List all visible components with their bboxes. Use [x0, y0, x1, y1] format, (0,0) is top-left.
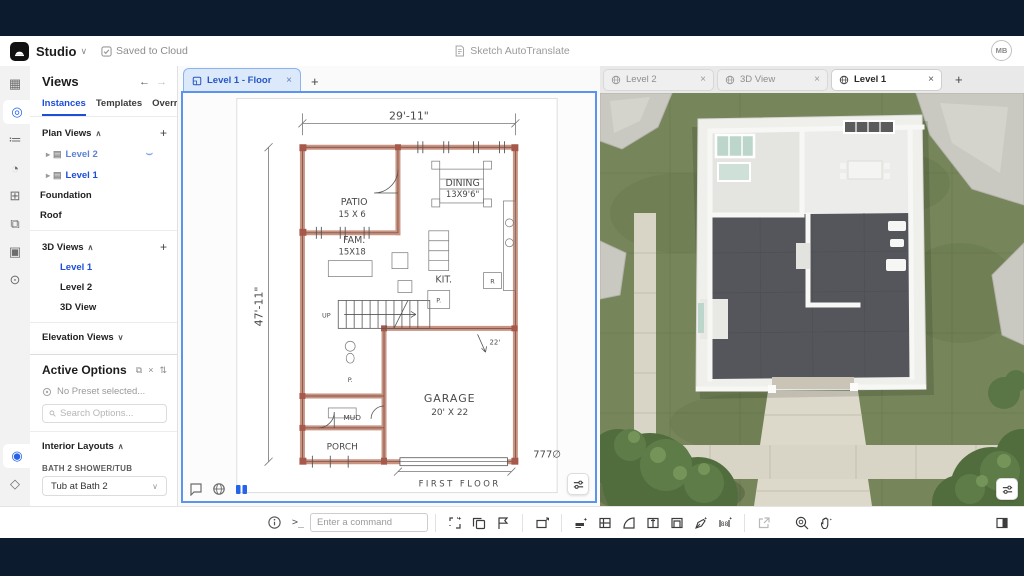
window-tool-icon[interactable] — [665, 512, 689, 534]
close-tab-icon[interactable]: × — [700, 74, 706, 85]
comment-icon[interactable] — [189, 482, 203, 496]
views-tabs: Instances Templates Overrides — [30, 93, 177, 117]
pin-icon[interactable]: ⊙ — [3, 268, 27, 292]
views-sidebar: Views ← → Instances Templates Overrides … — [30, 66, 178, 506]
plan-caption: FIRST FLOOR — [419, 479, 501, 489]
sheets-icon[interactable]: ▦ — [3, 72, 27, 96]
app-name[interactable]: Studio — [36, 44, 76, 59]
plan-dining-size: 13X9'6" — [446, 189, 480, 199]
sliders-icon — [572, 478, 585, 491]
new-tab-button[interactable]: + — [311, 74, 319, 92]
preset-icon — [42, 387, 52, 397]
panel-toggle-icon[interactable] — [990, 512, 1014, 534]
3d-views-section-header[interactable]: 3D Views ∧ + — [30, 231, 177, 257]
canvas-corner-tools — [189, 482, 248, 496]
floor-plan-sketch: 29'-11" 47'-11" — [183, 93, 595, 501]
autotranslate-status: Sketch AutoTranslate — [454, 45, 569, 57]
history-forward-button[interactable]: → — [156, 76, 167, 88]
floor-layers-icon: ▤ — [53, 170, 62, 181]
left-icon-rail: ▦ ◎ ≔ ◔ ⊞ ⧉ ▣ ⊙ ◉ ◇ — [0, 66, 30, 506]
sketch-pen-icon[interactable] — [689, 512, 713, 534]
item-label[interactable]: Roof — [40, 210, 62, 221]
tab-templates[interactable]: Templates — [96, 98, 142, 116]
history-back-button[interactable]: ← — [139, 76, 150, 88]
sliders-icon — [1001, 483, 1014, 496]
bath3-field-label: BATH 3 LAYOUT — [30, 496, 177, 506]
tab-level1-floor[interactable]: Level 1 - Floor × — [183, 68, 301, 92]
grid-icon[interactable]: ⊞ — [3, 184, 27, 208]
options-icon[interactable]: ◉ — [3, 444, 31, 468]
info-icon[interactable] — [262, 512, 286, 534]
sketch-pane: Level 1 - Floor × + 29'-11" — [178, 66, 600, 506]
plan-view-level-1[interactable]: ▸ ▤ Level 1 — [30, 165, 177, 185]
item-label[interactable]: Foundation — [40, 190, 92, 201]
split-view-icon[interactable] — [235, 483, 248, 496]
svg-text:88: 88 — [720, 520, 728, 528]
sort-icon[interactable]: ⇅ — [159, 365, 167, 376]
render-pane: Level 2 × 3D View × Level 1 × + — [600, 66, 1024, 506]
plan-patio-size: 15 X 6 — [339, 209, 366, 219]
command-prompt-icon[interactable]: >_ — [292, 517, 304, 528]
elevation-views-section-header[interactable]: Elevation Views ∨ — [30, 323, 177, 346]
bath2-field-label: BATH 2 SHOWER/TUB — [30, 455, 177, 476]
popout-icon[interactable]: ⧉ — [136, 365, 142, 376]
plan-dim-top: 29'-11" — [389, 109, 429, 122]
add-3d-view-button[interactable]: + — [160, 240, 167, 254]
checklist-icon[interactable]: ≔ — [3, 128, 27, 152]
sketch-canvas[interactable]: 29'-11" 47'-11" — [181, 91, 597, 503]
plan-garage-label: GARAGE — [424, 392, 476, 405]
saved-status: Saved to Cloud — [101, 45, 188, 57]
3d-view-level-1[interactable]: Level 1 — [30, 257, 177, 277]
tab-3d-view[interactable]: 3D View × — [717, 69, 828, 91]
preset-label: No Preset selected... — [57, 386, 145, 397]
plan-fridge-label: R — [490, 278, 495, 286]
app-logo-icon[interactable] — [10, 42, 29, 61]
duplicate-icon[interactable] — [467, 512, 491, 534]
plan-area-label: 777∅ — [533, 450, 561, 461]
sphere-icon — [725, 75, 735, 85]
collapse-caret-icon[interactable]: ∧ — [95, 129, 101, 138]
bath2-select-value: Tub at Bath 2 — [51, 481, 108, 492]
box-icon[interactable]: ◇ — [3, 472, 27, 496]
draw-rectangle-icon[interactable] — [530, 512, 554, 534]
command-input[interactable] — [310, 513, 428, 532]
sphere-icon — [611, 75, 621, 85]
preset-row[interactable]: No Preset selected... — [30, 379, 177, 399]
plan-view-foundation[interactable]: Foundation — [30, 185, 177, 205]
twirl-icon[interactable]: ▸ — [46, 171, 50, 180]
plan-views-label: Plan Views — [42, 128, 91, 139]
user-avatar[interactable]: MB — [991, 40, 1012, 61]
sketch-doc-icon — [454, 45, 465, 57]
render-viewport[interactable] — [600, 93, 1024, 506]
collapse-caret-icon[interactable]: ∧ — [88, 243, 94, 252]
plan-view-level-2[interactable]: ▸ ▤ Level 2 ⌣ — [30, 143, 177, 165]
bottom-toolbar: >_ — [0, 506, 1024, 538]
dropdown-chevron-icon: ∨ — [152, 482, 158, 491]
close-tab-icon[interactable]: × — [286, 75, 292, 86]
add-plan-view-button[interactable]: + — [160, 126, 167, 140]
render-tabstrip: Level 2 × 3D View × Level 1 × + — [600, 66, 1024, 93]
export-icon — [752, 512, 776, 534]
checkbox-icon — [101, 46, 112, 57]
plan-doc-icon — [192, 76, 202, 86]
top-header: Studio ∨ Saved to Cloud Sketch AutoTrans… — [0, 36, 1024, 66]
saved-status-label: Saved to Cloud — [116, 45, 188, 57]
slab-tool-icon[interactable] — [593, 512, 617, 534]
plan-patio-label: PATIO — [341, 197, 368, 208]
search-zoom-icon[interactable] — [790, 512, 814, 534]
expand-caret-icon[interactable]: ∨ — [118, 333, 124, 342]
app-menu-chevron-icon[interactable]: ∨ — [80, 46, 87, 57]
3d-globe-icon[interactable] — [212, 482, 226, 496]
active-options-title: Active Options — [42, 363, 130, 377]
wall-tool-icon[interactable] — [569, 512, 593, 534]
twirl-icon[interactable]: ▸ — [46, 150, 50, 159]
plan-porch-label: PORCH — [327, 443, 358, 453]
item-label[interactable]: Level 2 — [66, 149, 98, 160]
plan-fam-label: FAM. — [343, 235, 365, 246]
close-tab-icon[interactable]: × — [928, 74, 934, 85]
interior-layouts-section-header[interactable]: Interior Layouts ∧ — [30, 432, 177, 455]
plan-views-section-header[interactable]: Plan Views ∧ + — [30, 117, 177, 143]
3d-views-label: 3D Views — [42, 242, 84, 253]
dimension-tool-icon[interactable]: 88 — [713, 512, 737, 534]
elevation-views-label: Elevation Views — [42, 332, 114, 343]
plan-pantry-label: P. — [436, 296, 441, 304]
tab-level-2[interactable]: Level 2 × — [603, 69, 714, 91]
layers-icon[interactable]: ⧉ — [3, 212, 27, 236]
close-tab-icon[interactable]: × — [814, 74, 820, 85]
3d-view-level-2[interactable]: Level 2 — [30, 277, 177, 297]
tab-label: Level 2 — [626, 74, 695, 85]
sketch-tabstrip: Level 1 - Floor × + — [178, 66, 600, 92]
plan-view-roof[interactable]: Roof — [30, 205, 177, 225]
plan-mud-label: MUD — [343, 413, 361, 422]
plan-bath-label: P. — [348, 376, 353, 384]
item-label[interactable]: 3D View — [60, 302, 96, 313]
search-icon — [49, 409, 56, 418]
item-label[interactable]: Level 1 — [66, 170, 98, 181]
views-icon[interactable]: ◎ — [3, 100, 31, 124]
plan-dim-22: 22' — [490, 338, 501, 346]
render-3d-scene — [600, 93, 1024, 506]
close-icon[interactable]: × — [148, 365, 153, 375]
grab-hand-icon[interactable] — [814, 512, 838, 534]
main-area: ▦ ◎ ≔ ◔ ⊞ ⧉ ▣ ⊙ ◉ ◇ Views ← → Instances … — [0, 66, 1024, 506]
tab-level-1[interactable]: Level 1 × — [831, 69, 942, 91]
door-tool-icon[interactable] — [641, 512, 665, 534]
app-window: Studio ∨ Saved to Cloud Sketch AutoTrans… — [0, 36, 1024, 538]
interior-layouts-label: Interior Layouts — [42, 441, 114, 452]
tab-label: Level 1 - Floor — [207, 75, 281, 86]
plan-dim-left: 47'-11" — [253, 287, 266, 327]
tab-instances[interactable]: Instances — [42, 98, 86, 116]
plan-dining-label: DINING — [446, 178, 480, 189]
autotranslate-label: Sketch AutoTranslate — [470, 45, 569, 57]
view-settings-button[interactable] — [996, 478, 1018, 500]
plan-up-label: UP — [322, 311, 331, 319]
view-settings-button[interactable] — [567, 473, 589, 495]
tab-label: 3D View — [740, 74, 809, 85]
plan-kit-label: KIT. — [435, 275, 452, 286]
item-label[interactable]: Level 2 — [60, 282, 92, 293]
tab-label: Level 1 — [854, 74, 923, 85]
flag-icon[interactable] — [491, 512, 515, 534]
sphere-icon — [839, 75, 849, 85]
bath2-select[interactable]: Tub at Bath 2 ∨ — [42, 476, 167, 496]
plan-fam-size: 15X18 — [339, 247, 366, 257]
sync-indicator-icon: ⌣ — [146, 148, 153, 161]
tab-overrides[interactable]: Overrides — [152, 98, 178, 116]
3d-view-3d-view[interactable]: 3D View — [30, 297, 177, 317]
plan-garage-size: 20' X 22 — [431, 408, 468, 418]
views-panel-title: Views — [42, 74, 133, 89]
globe-icon[interactable]: ◔ — [3, 156, 27, 180]
select-transform-icon[interactable] — [443, 512, 467, 534]
roof-tool-icon[interactable] — [617, 512, 641, 534]
floor-layers-icon: ▤ — [53, 149, 62, 160]
options-search-input[interactable] — [60, 408, 160, 419]
options-search[interactable] — [42, 404, 167, 423]
active-options-header: Active Options ⧉ × ⇅ — [30, 355, 177, 379]
image-icon[interactable]: ▣ — [3, 240, 27, 264]
new-tab-button[interactable]: + — [955, 72, 963, 87]
item-label[interactable]: Level 1 — [60, 262, 92, 273]
collapse-caret-icon[interactable]: ∧ — [118, 442, 124, 451]
